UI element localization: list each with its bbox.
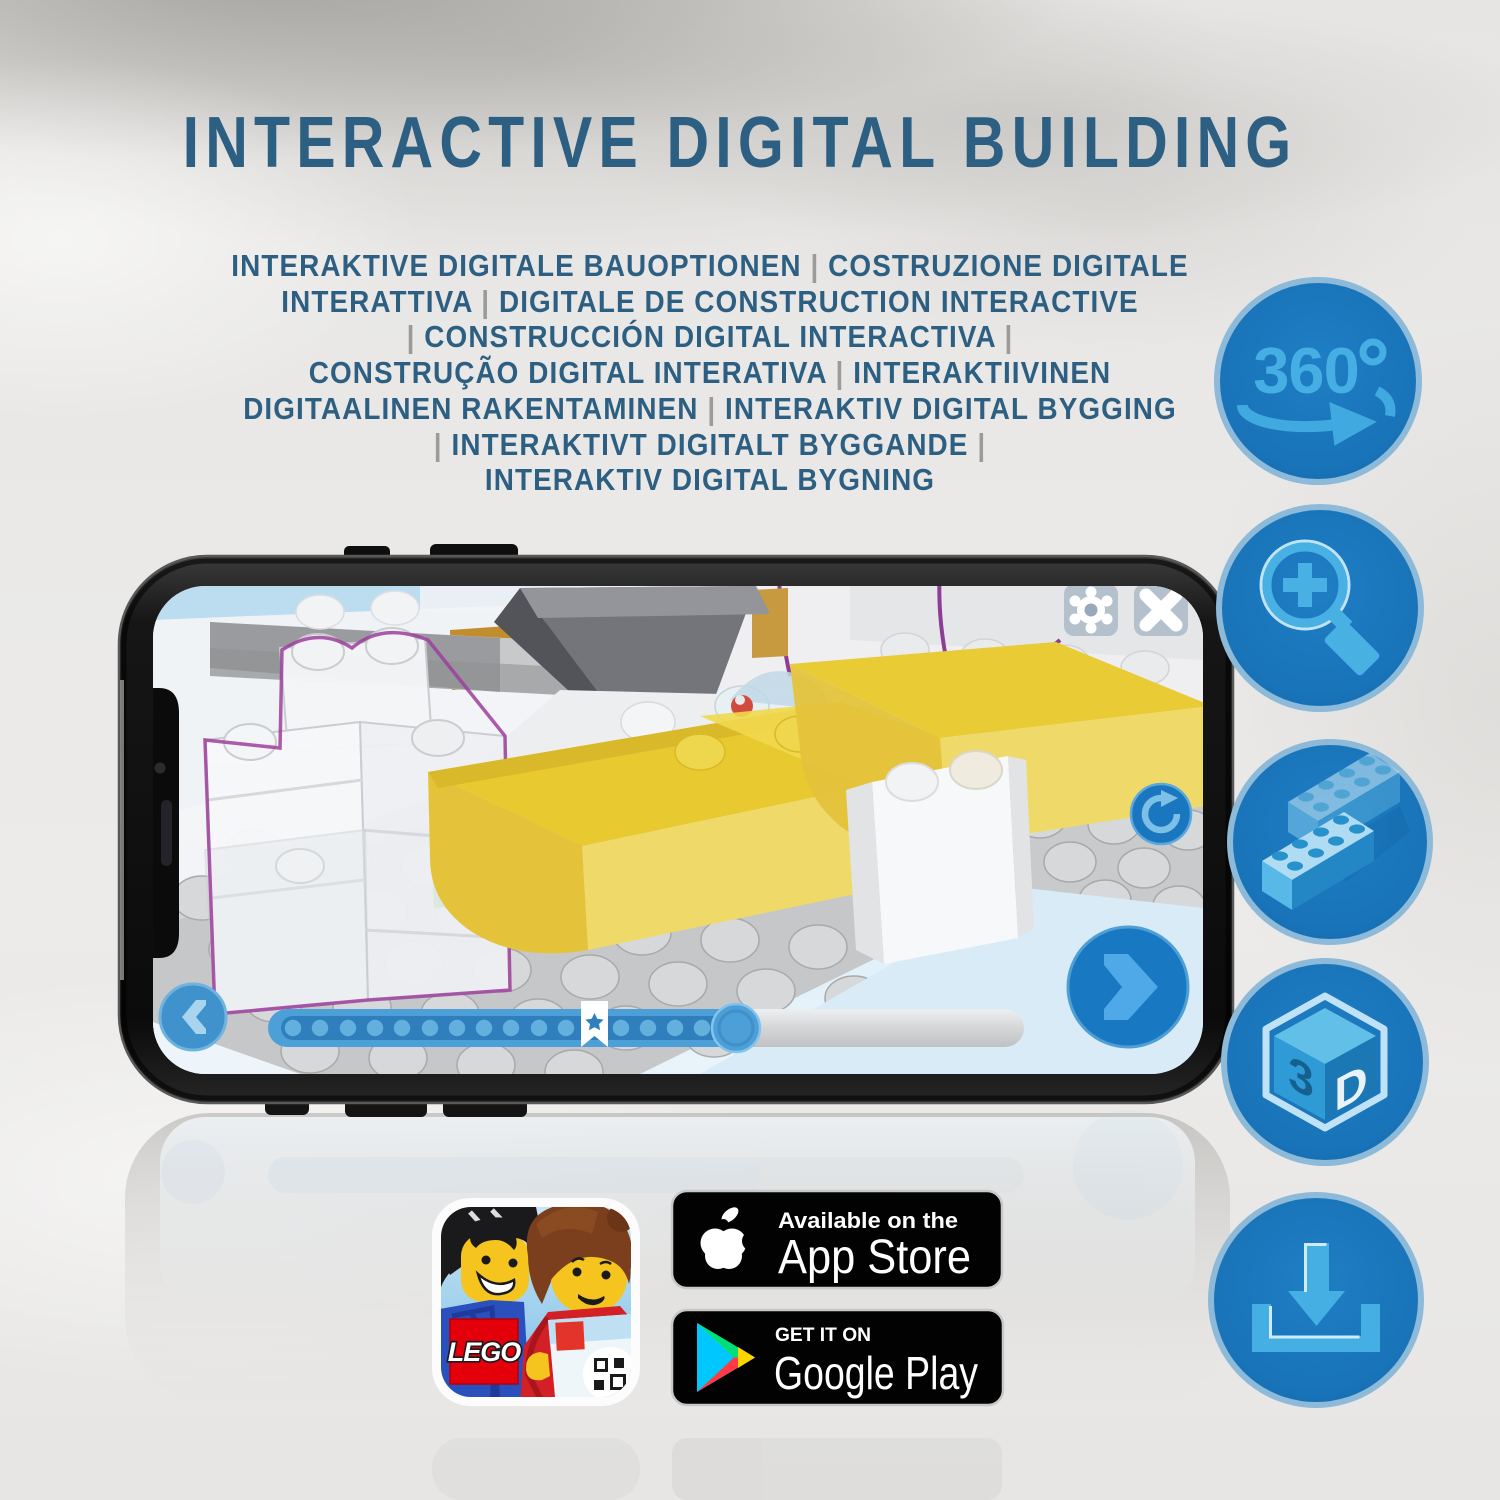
svg-text:Google Play: Google Play <box>774 1347 978 1399</box>
svg-text:Available on the: Available on the <box>778 1208 958 1233</box>
svg-text:App Store: App Store <box>778 1231 971 1284</box>
svg-text:GET IT ON: GET IT ON <box>775 1325 871 1346</box>
svg-text:LEGO: LEGO <box>448 1337 522 1367</box>
